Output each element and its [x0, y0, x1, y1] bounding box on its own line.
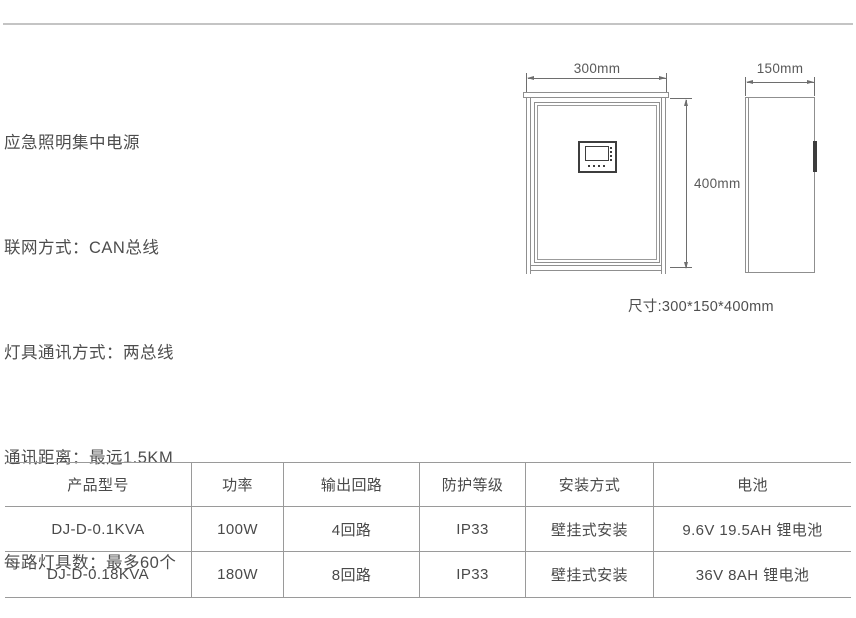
cabinet-side-wall-line — [748, 98, 749, 272]
panel-button-icon — [603, 165, 605, 167]
table-header-battery: 电池 — [654, 463, 851, 507]
top-divider-line — [3, 23, 853, 25]
table-header-circuits: 输出回路 — [284, 463, 420, 507]
side-width-dimension-label: 150mm — [735, 61, 825, 76]
front-width-dimension-label: 300mm — [552, 61, 642, 76]
side-width-dimension-line — [747, 82, 814, 83]
table-cell: IP33 — [420, 507, 526, 552]
table-header-ip-rating: 防护等级 — [420, 463, 526, 507]
cabinet-front-door-inner-frame — [537, 105, 657, 260]
cabinet-front-bottom-strip — [530, 265, 662, 271]
door-handle — [813, 141, 817, 172]
cabinet-front-door — [534, 102, 660, 263]
table-cell: 100W — [192, 507, 284, 552]
spec-line-lamp-comm: 灯具通讯方式：两总线 — [4, 336, 276, 371]
front-height-dimension-line — [686, 100, 687, 268]
table-cell: 36V 8AH 锂电池 — [654, 552, 851, 597]
table-cell: 壁挂式安装 — [526, 552, 654, 597]
table-cell: IP33 — [420, 552, 526, 597]
cabinet-side-view — [745, 97, 815, 273]
dimension-extension-line — [666, 73, 667, 92]
panel-button-icon — [593, 165, 595, 167]
product-spec-table: 产品型号 功率 输出回路 防护等级 安装方式 电池 DJ-D-0.1KVA 10… — [5, 462, 851, 598]
table-header-model: 产品型号 — [5, 463, 192, 507]
dimension-arrow-icon — [684, 99, 688, 106]
display-screen — [585, 146, 609, 161]
control-panel — [578, 141, 617, 173]
panel-button-icon — [588, 165, 590, 167]
table-cell: DJ-D-0.18KVA — [5, 552, 192, 597]
datasheet-page: 应急照明集中电源 联网方式：CAN总线 灯具通讯方式：两总线 通讯距离：最远1.… — [0, 0, 856, 618]
panel-button-icon — [610, 147, 612, 149]
table-cell: 8回路 — [284, 552, 420, 597]
panel-button-icon — [610, 151, 612, 153]
table-header-mounting: 安装方式 — [526, 463, 654, 507]
dimension-extension-line — [526, 73, 527, 92]
dimension-extension-line — [670, 267, 692, 268]
dimension-arrow-icon — [527, 76, 534, 80]
table-cell: 180W — [192, 552, 284, 597]
spec-line-network: 联网方式：CAN总线 — [4, 231, 276, 266]
table-cell: DJ-D-0.1KVA — [5, 507, 192, 552]
front-width-dimension-line — [528, 78, 666, 79]
cabinet-front-left-wall — [526, 97, 531, 274]
table-cell: 4回路 — [284, 507, 420, 552]
table-header-power: 功率 — [192, 463, 284, 507]
table-cell: 壁挂式安装 — [526, 507, 654, 552]
front-height-dimension-label: 400mm — [694, 176, 741, 191]
dimension-extension-line — [745, 77, 746, 96]
panel-button-icon — [610, 155, 612, 157]
dimension-arrow-icon — [659, 76, 666, 80]
table-cell: 9.6V 19.5AH 锂电池 — [654, 507, 851, 552]
dimension-extension-line — [814, 77, 815, 96]
spec-line-product-name: 应急照明集中电源 — [4, 126, 276, 161]
dimension-arrow-icon — [807, 80, 814, 84]
cabinet-front-right-wall — [661, 97, 666, 274]
panel-button-icon — [598, 165, 600, 167]
cabinet-front-lid — [523, 92, 669, 98]
overall-size-label: 尺寸:300*150*400mm — [628, 295, 774, 316]
panel-button-icon — [610, 159, 612, 161]
dimension-extension-line — [670, 98, 692, 99]
dimension-arrow-icon — [746, 80, 753, 84]
